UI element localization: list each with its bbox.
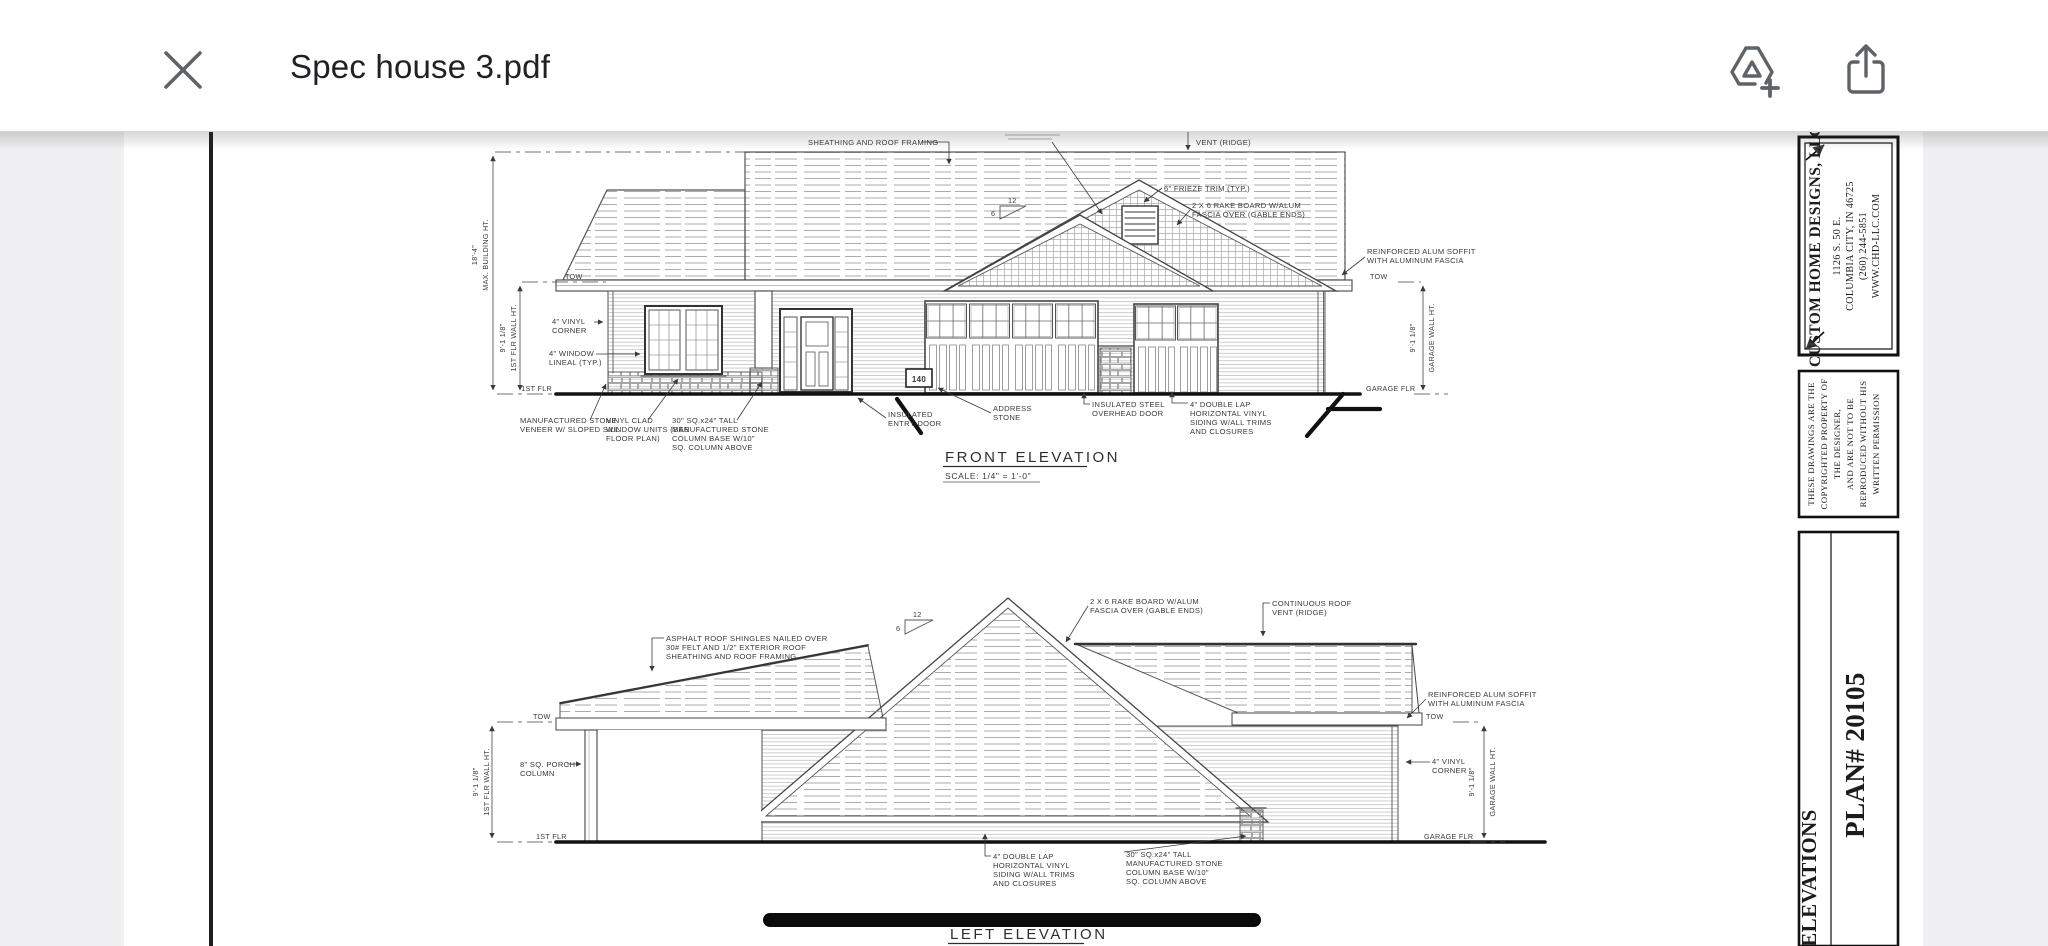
- svg-text:30# FELT AND 1/2" EXTERIOR ROO: 30# FELT AND 1/2" EXTERIOR ROOF: [666, 643, 806, 652]
- svg-text:6" FRIEZE TRIM (TYP.): 6" FRIEZE TRIM (TYP.): [1164, 184, 1250, 193]
- svg-text:2 X 6 RAKE BOARD W/ALUM: 2 X 6 RAKE BOARD W/ALUM: [1090, 597, 1199, 606]
- home-indicator[interactable]: [763, 913, 1261, 927]
- svg-text:CORNER: CORNER: [1432, 766, 1467, 775]
- front-window: [641, 306, 726, 376]
- svg-text:VENT (RIDGE): VENT (RIDGE): [1272, 608, 1327, 617]
- title-block-company-box: CUSTOM HOME DESIGNS, LLC 1126 S. 50 E. C…: [1799, 125, 1898, 367]
- svg-text:FASCIA OVER (GABLE ENDS): FASCIA OVER (GABLE ENDS): [1090, 606, 1203, 615]
- share-button[interactable]: [1836, 40, 1896, 100]
- close-button[interactable]: [153, 40, 213, 100]
- svg-text:REINFORCED ALUM SOFFIT: REINFORCED ALUM SOFFIT: [1367, 247, 1476, 256]
- svg-text:INSULATED: INSULATED: [888, 410, 933, 419]
- svg-text:4" WINDOW: 4" WINDOW: [549, 349, 595, 358]
- svg-text:30" SQ.x24" TALL: 30" SQ.x24" TALL: [672, 416, 738, 425]
- svg-text:4" VINYL: 4" VINYL: [552, 317, 585, 326]
- svg-text:MANUFACTURED STONE: MANUFACTURED STONE: [520, 416, 617, 425]
- svg-text:TOW: TOW: [533, 712, 551, 721]
- svg-text:ADDRESS: ADDRESS: [993, 404, 1032, 413]
- sheet-name: ELEVATIONS: [1797, 809, 1821, 946]
- svg-text:2 X 6 RAKE BOARD W/ALUM: 2 X 6 RAKE BOARD W/ALUM: [1192, 201, 1301, 210]
- svg-text:GARAGE WALL HT.: GARAGE WALL HT.: [1427, 303, 1436, 372]
- stone-veneer-strip: [608, 372, 762, 394]
- svg-text:SQ. COLUMN ABOVE: SQ. COLUMN ABOVE: [672, 443, 753, 452]
- svg-text:MANUFACTURED STONE: MANUFACTURED STONE: [1126, 859, 1223, 868]
- stone-column-base: [1240, 810, 1263, 842]
- porch-column: [585, 730, 597, 842]
- svg-text:1ST FLR: 1ST FLR: [521, 384, 552, 393]
- svg-text:COLUMN: COLUMN: [520, 769, 555, 778]
- svg-text:REPRODUCED WITHOUT HIS: REPRODUCED WITHOUT HIS: [1858, 381, 1868, 508]
- svg-text:COLUMBIA CITY, IN 46725: COLUMBIA CITY, IN 46725: [1845, 181, 1856, 311]
- svg-text:OVERHEAD DOOR: OVERHEAD DOOR: [1092, 409, 1164, 418]
- svg-text:VENEER W/ SLOPED SILL: VENEER W/ SLOPED SILL: [520, 425, 620, 434]
- svg-text:COLUMN BASE W/10": COLUMN BASE W/10": [1126, 868, 1209, 877]
- svg-text:4" VINYL: 4" VINYL: [1432, 757, 1465, 766]
- svg-text:TOW: TOW: [565, 272, 583, 281]
- svg-text:4" DOUBLE LAP: 4" DOUBLE LAP: [993, 852, 1054, 861]
- toolbar-divider: [0, 131, 2048, 132]
- svg-text:FASCIA OVER (GABLE ENDS): FASCIA OVER (GABLE ENDS): [1192, 210, 1305, 219]
- title-block-plan-box: ELEVATIONS PLAN# 20105: [1797, 532, 1898, 946]
- address-stone: 140: [906, 369, 932, 387]
- svg-text:CUSTOM HOME DESIGNS, LLC: CUSTOM HOME DESIGNS, LLC: [1807, 125, 1824, 367]
- svg-text:MAX. BUILDING HT.: MAX. BUILDING HT.: [481, 219, 490, 290]
- toolbar-shadow: [0, 132, 2048, 150]
- svg-text:ASPHALT ROOF SHINGLES NAILED O: ASPHALT ROOF SHINGLES NAILED OVER: [666, 634, 828, 643]
- svg-text:SHEATHING AND ROOF FRAMING: SHEATHING AND ROOF FRAMING: [666, 652, 796, 661]
- svg-text:WWW.CHD-LLC.COM: WWW.CHD-LLC.COM: [1871, 194, 1882, 299]
- svg-text:GARAGE FLR: GARAGE FLR: [1424, 832, 1473, 841]
- plan-number: PLAN# 20105: [1840, 672, 1870, 838]
- svg-text:9'-1 1/8": 9'-1 1/8": [1408, 323, 1417, 352]
- stone-pier: [1100, 348, 1131, 393]
- garage-door-small: [1134, 304, 1218, 393]
- svg-text:GARAGE FLR: GARAGE FLR: [1366, 384, 1415, 393]
- svg-text:AND CLOSURES: AND CLOSURES: [993, 879, 1057, 888]
- svg-text:SIDING W/ALL TRIMS: SIDING W/ALL TRIMS: [1190, 418, 1272, 427]
- svg-text:12: 12: [913, 610, 922, 619]
- svg-text:SCALE: 1/4" = 1'-0": SCALE: 1/4" = 1'-0": [945, 471, 1031, 481]
- svg-text:8" SQ. PORCH: 8" SQ. PORCH: [520, 760, 575, 769]
- svg-text:WITH ALUMINUM FASCIA: WITH ALUMINUM FASCIA: [1428, 699, 1525, 708]
- svg-text:1ST FLR WALL HT.: 1ST FLR WALL HT.: [509, 304, 518, 371]
- svg-text:HORIZONTAL VINYL: HORIZONTAL VINYL: [1190, 409, 1267, 418]
- svg-text:CORNER: CORNER: [552, 326, 587, 335]
- svg-text:9'-1 1/8": 9'-1 1/8": [1467, 767, 1476, 796]
- svg-text:AND CLOSURES: AND CLOSURES: [1190, 427, 1254, 436]
- title-block: CUSTOM HOME DESIGNS, LLC 1126 S. 50 E. C…: [1797, 125, 1898, 946]
- svg-text:WRITTEN PERMISSION: WRITTEN PERMISSION: [1871, 393, 1881, 495]
- svg-text:LEFT ELEVATION: LEFT ELEVATION: [950, 926, 1108, 943]
- svg-text:18'-4": 18'-4": [470, 245, 479, 265]
- svg-text:REINFORCED ALUM SOFFIT: REINFORCED ALUM SOFFIT: [1428, 690, 1537, 699]
- svg-text:TOW: TOW: [1426, 712, 1444, 721]
- left-title: LEFT ELEVATION SCALE: 1/4" = 1'-0": [948, 926, 1108, 946]
- svg-text:1ST FLR: 1ST FLR: [536, 832, 567, 841]
- svg-text:AND ARE NOT TO BE: AND ARE NOT TO BE: [1845, 398, 1855, 490]
- svg-text:THE DESIGNER,: THE DESIGNER,: [1832, 409, 1842, 479]
- svg-text:FLOOR PLAN): FLOOR PLAN): [606, 434, 660, 443]
- front-title: FRONT ELEVATION SCALE: 1/4" = 1'-0": [943, 449, 1120, 482]
- svg-text:12: 12: [1008, 196, 1017, 205]
- svg-text:THESE DRAWINGS ARE THE: THESE DRAWINGS ARE THE: [1806, 382, 1816, 506]
- svg-text:MANUFACTURED STONE: MANUFACTURED STONE: [672, 425, 769, 434]
- svg-text:COLUMN BASE W/10": COLUMN BASE W/10": [672, 434, 755, 443]
- left-slope-indicator: 12 6: [896, 610, 933, 634]
- svg-text:CONTINUOUS ROOF: CONTINUOUS ROOF: [1272, 599, 1352, 608]
- svg-text:9'-1 1/8": 9'-1 1/8": [471, 767, 480, 796]
- svg-text:6: 6: [896, 624, 900, 633]
- svg-text:FRONT ELEVATION: FRONT ELEVATION: [945, 449, 1120, 466]
- add-to-drive-icon: [1732, 48, 1778, 96]
- svg-text:STONE: STONE: [993, 413, 1021, 422]
- svg-text:ENTRY DOOR: ENTRY DOOR: [888, 419, 942, 428]
- address-number: 140: [912, 375, 926, 384]
- svg-text:TOW: TOW: [1370, 272, 1388, 281]
- svg-text:VINYL CLAD: VINYL CLAD: [606, 416, 653, 425]
- garage-door-large: [925, 301, 1098, 393]
- front-elevation-drawing: 140 12 6: [556, 152, 1380, 436]
- toolbar: Spec house 3.pdf: [0, 0, 2048, 131]
- front-porch-column: [755, 291, 772, 368]
- svg-text:LINEAL (TYP.): LINEAL (TYP.): [549, 358, 602, 367]
- svg-text:6: 6: [991, 209, 995, 218]
- close-icon: [166, 53, 200, 87]
- svg-text:(260) 244-5851: (260) 244-5851: [1858, 212, 1869, 280]
- svg-text:1126 S. 50 E.: 1126 S. 50 E.: [1832, 217, 1843, 276]
- add-to-drive-button[interactable]: [1722, 40, 1782, 100]
- svg-text:COPYRIGHTED PROPERTY OF: COPYRIGHTED PROPERTY OF: [1819, 378, 1829, 509]
- entry-door: [780, 309, 852, 392]
- svg-text:4" DOUBLE LAP: 4" DOUBLE LAP: [1190, 400, 1251, 409]
- svg-text:HORIZONTAL VINYL: HORIZONTAL VINYL: [993, 861, 1070, 870]
- page-title: Spec house 3.pdf: [290, 48, 550, 86]
- svg-text:INSULATED STEEL: INSULATED STEEL: [1092, 400, 1165, 409]
- title-block-copyright-box: THESE DRAWINGS ARE THE COPYRIGHTED PROPE…: [1799, 371, 1898, 517]
- svg-text:SIDING W/ALL TRIMS: SIDING W/ALL TRIMS: [993, 870, 1075, 879]
- svg-text:9'-1 1/8": 9'-1 1/8": [498, 323, 507, 352]
- svg-text:WITH ALUMINUM FASCIA: WITH ALUMINUM FASCIA: [1367, 256, 1464, 265]
- share-icon: [1849, 46, 1883, 92]
- svg-text:30" SQ.x24" TALL: 30" SQ.x24" TALL: [1126, 850, 1192, 859]
- svg-text:1ST FLR WALL HT.: 1ST FLR WALL HT.: [482, 748, 491, 815]
- svg-text:GARAGE WALL HT.: GARAGE WALL HT.: [1488, 747, 1497, 816]
- svg-text:SQ. COLUMN ABOVE: SQ. COLUMN ABOVE: [1126, 877, 1207, 886]
